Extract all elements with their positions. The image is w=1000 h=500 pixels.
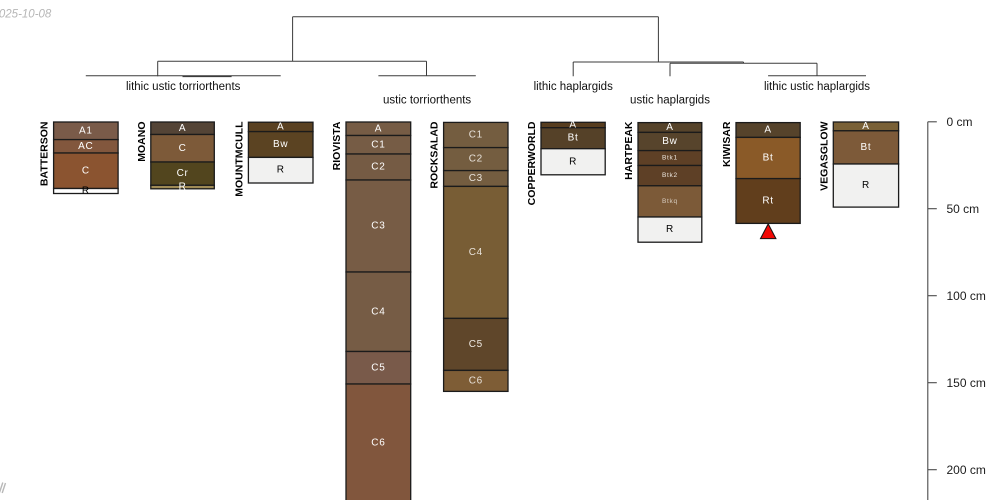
svg-text:KIWISAR: KIWISAR [721,121,733,167]
svg-text:Bt: Bt [763,153,774,164]
svg-text:2025-10-08: 2025-10-08 [0,9,52,21]
svg-text:C: C [82,165,90,176]
svg-text:A: A [569,120,576,131]
svg-text:MOUNTMCULL: MOUNTMCULL [233,121,245,197]
svg-text:Rt: Rt [762,196,773,207]
svg-text:A1: A1 [79,125,93,136]
svg-text:COPPERWORLD: COPPERWORLD [526,121,538,205]
svg-text:A: A [179,123,186,134]
svg-text:Bw: Bw [273,139,288,150]
svg-text:C3: C3 [371,221,385,232]
svg-text:A: A [375,123,382,134]
svg-text:ustic torriorthents: ustic torriorthents [383,95,471,107]
svg-text:0 cm: 0 cm [947,115,973,129]
svg-text:Bt: Bt [860,142,871,153]
svg-text:HARTPEAK: HARTPEAK [623,121,635,180]
svg-text:lithic ustic haplargids: lithic ustic haplargids [764,81,870,93]
svg-text:C1: C1 [371,139,385,150]
svg-text:C2: C2 [371,162,385,173]
svg-text:150 cm: 150 cm [947,376,986,390]
svg-text:BATTERSON: BATTERSON [39,122,51,187]
svg-text:ustic haplargids: ustic haplargids [630,95,710,107]
svg-text:50 cm: 50 cm [947,202,980,216]
svg-text:A: A [277,121,284,132]
svg-text:lithic haplargids: lithic haplargids [534,81,614,93]
svg-text:Btk1: Btk1 [662,155,678,162]
svg-text:lithic ustic torriorthents: lithic ustic torriorthents [126,81,241,93]
svg-text:C5: C5 [371,362,385,373]
svg-text:R: R [569,156,577,167]
svg-text:C2: C2 [469,154,483,165]
svg-text:VEGASGLOW: VEGASGLOW [818,121,830,191]
svg-text:C: C [179,143,187,154]
svg-text:Cr: Cr [177,168,189,179]
svg-text:C6: C6 [469,375,483,386]
svg-text:C5: C5 [469,339,483,350]
svg-text:Bt: Bt [568,133,579,144]
svg-text:R: R [862,180,870,191]
svg-text:A: A [764,125,771,136]
svg-text:R: R [179,182,187,193]
svg-text:200 cm: 200 cm [947,463,986,477]
svg-text:C6: C6 [371,437,385,448]
svg-text:R: R [277,165,285,176]
svg-text:A: A [862,121,869,132]
svg-text:A: A [666,122,673,133]
svg-text:MOANO: MOANO [136,122,148,162]
svg-text:Bw: Bw [662,136,677,147]
svg-text:AC: AC [78,141,93,152]
svg-text:R: R [82,186,90,197]
svg-text:Btk2: Btk2 [662,172,678,179]
svg-text:C1: C1 [469,130,483,141]
svg-text:ROCKSALAD: ROCKSALAD [429,121,441,188]
svg-text:RIOVISTA: RIOVISTA [331,121,343,170]
svg-text:Btkq: Btkq [662,198,678,205]
svg-text:C3: C3 [469,173,483,184]
svg-text:C4: C4 [469,247,483,258]
svg-text:C4: C4 [371,306,385,317]
svg-text:R: R [666,224,674,235]
svg-text:100 cm: 100 cm [947,289,986,303]
